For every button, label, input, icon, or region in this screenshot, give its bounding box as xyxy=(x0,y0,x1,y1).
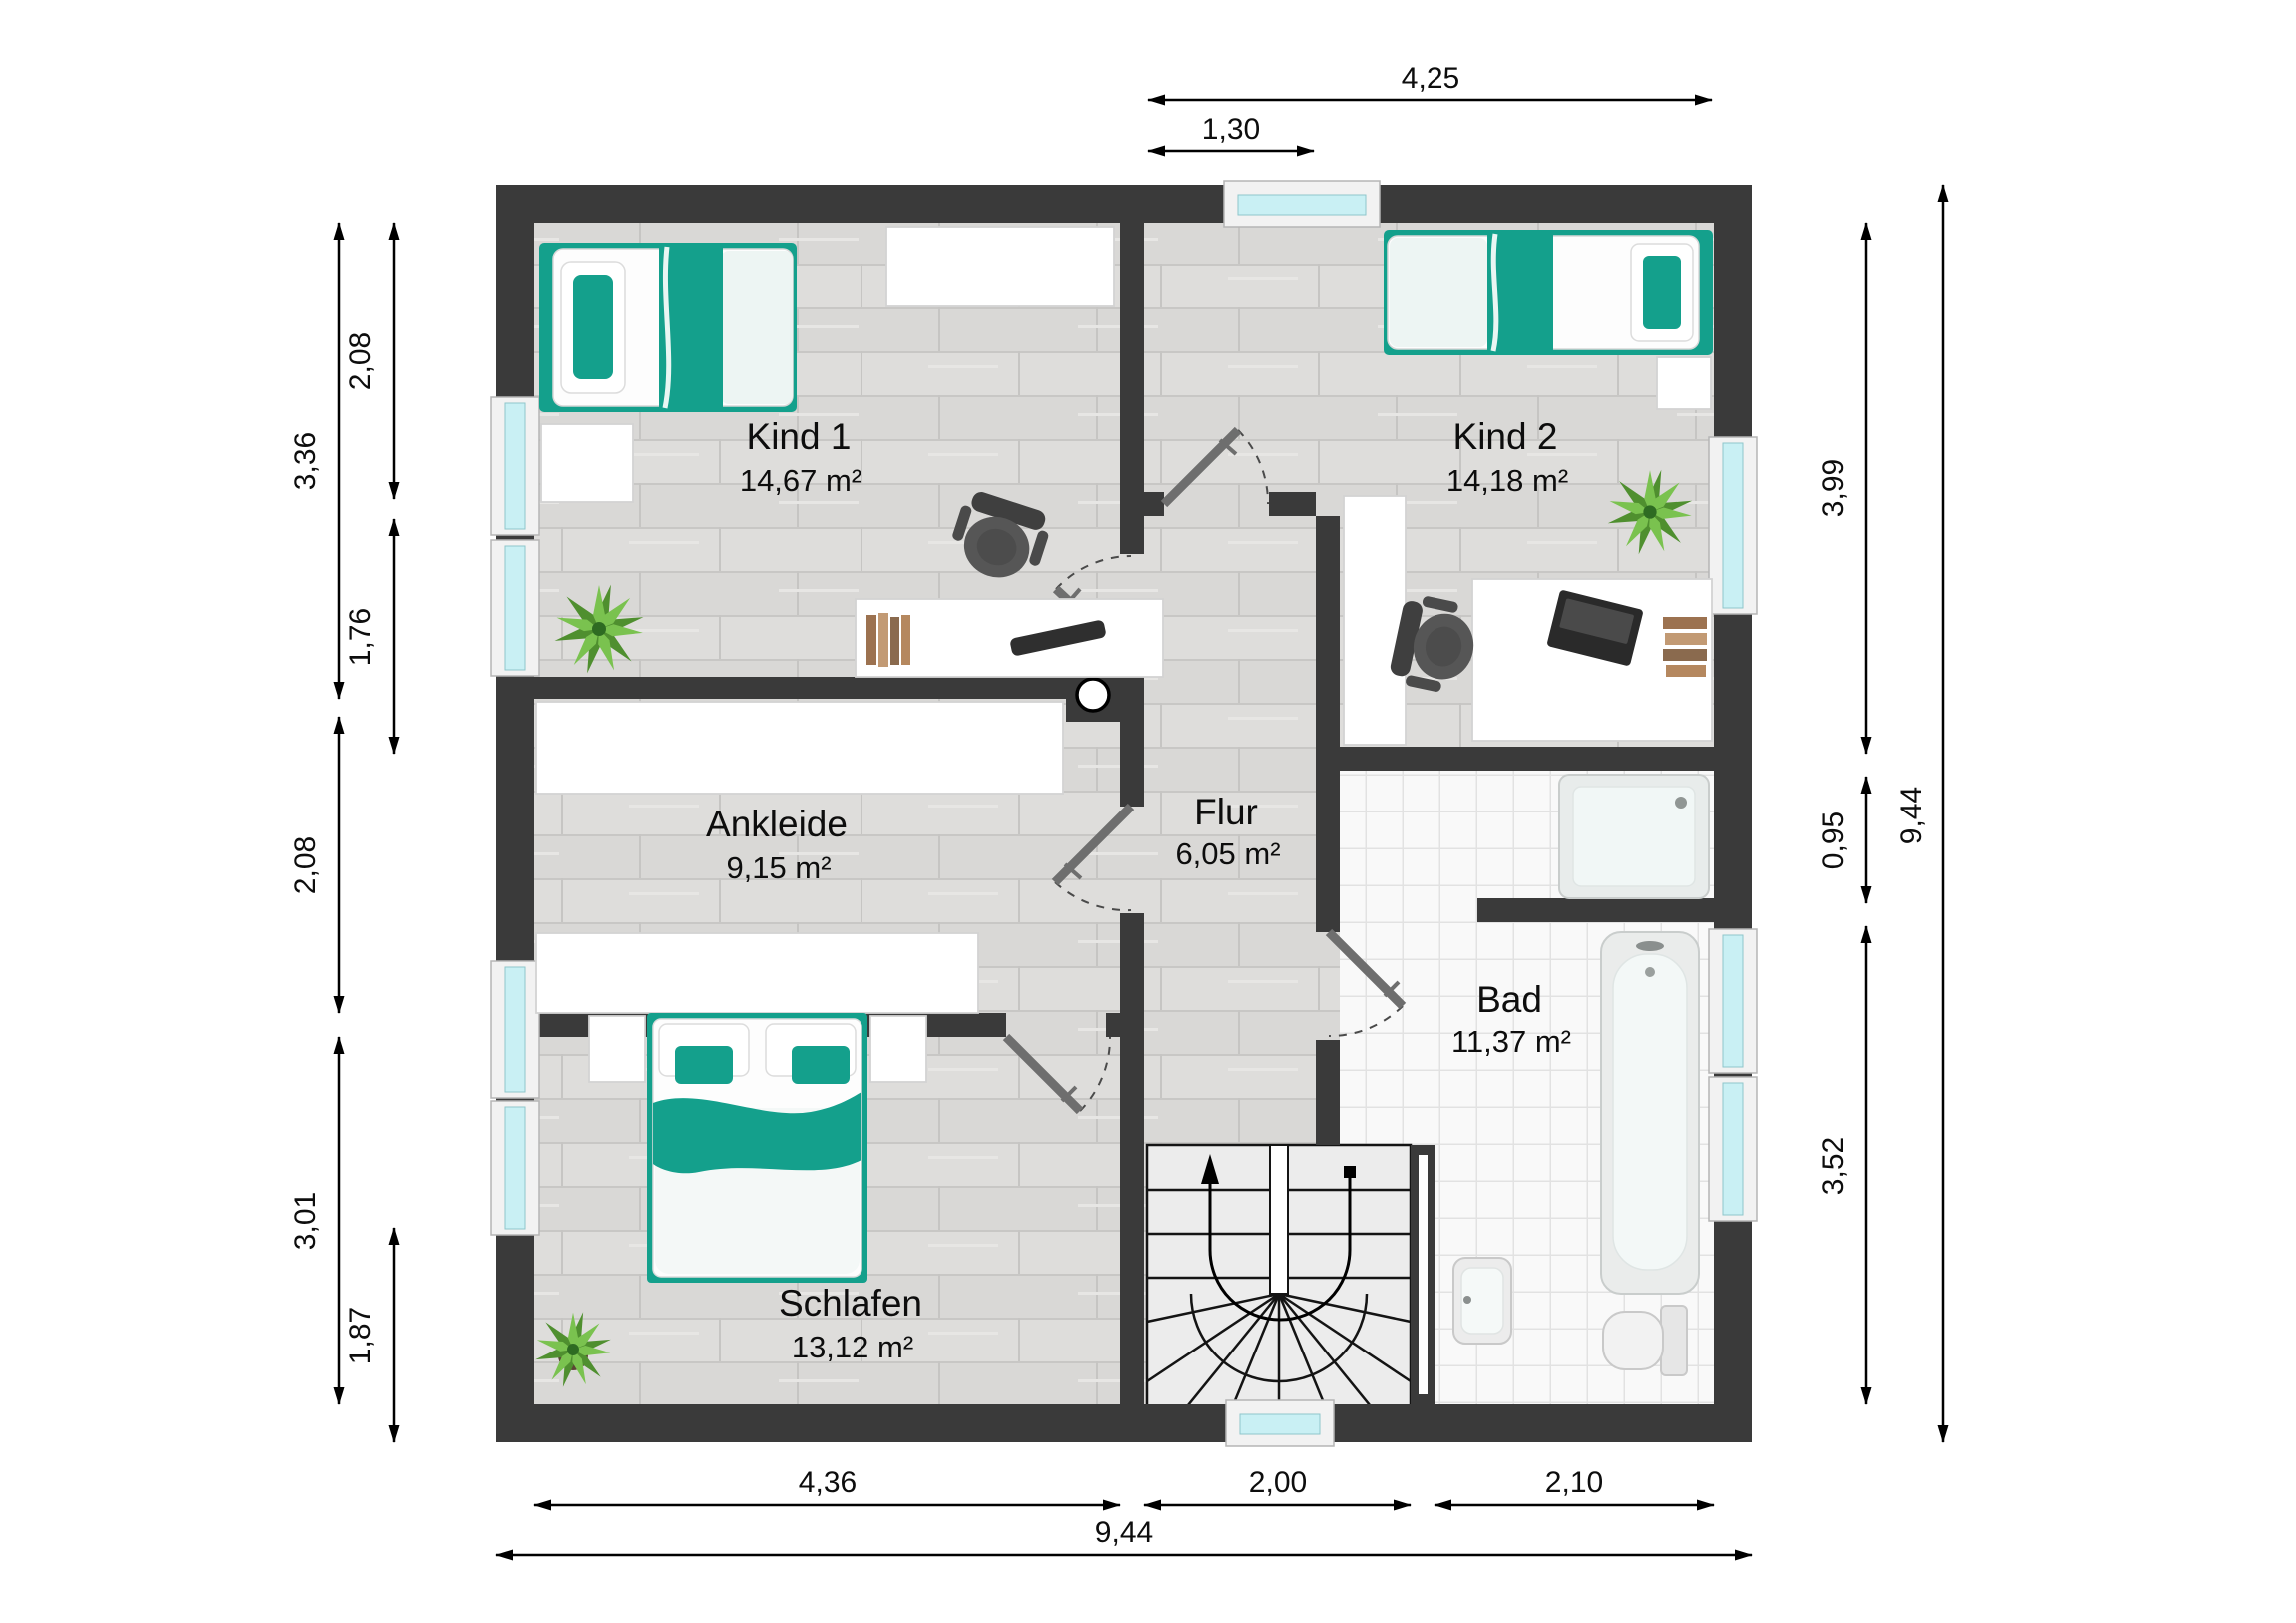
nightstand-kind2 xyxy=(1657,357,1711,409)
wall-kind1-flur-mid xyxy=(1120,656,1144,807)
room-area-schlafen: 13,12 m² xyxy=(792,1330,913,1364)
wardrobe-ankleide-bottom xyxy=(536,933,978,1013)
dim-right-total: 9,44 xyxy=(1895,787,1928,844)
room-label-schlafen: Schlafen xyxy=(779,1283,922,1324)
room-area-kind2: 14,18 m² xyxy=(1446,463,1568,498)
wall-shower-nook xyxy=(1477,898,1714,922)
room-label-flur: Flur xyxy=(1194,792,1258,832)
dim-right-kind2: 3,99 xyxy=(1817,459,1850,517)
room-area-kind1: 14,67 m² xyxy=(740,463,861,498)
dim-left-schlafen: 3,01 xyxy=(289,1192,322,1250)
room-area-flur: 6,05 m² xyxy=(1175,836,1280,871)
wall-kind2-door-right xyxy=(1269,492,1316,516)
nightstand-schlafen-right xyxy=(870,1016,926,1082)
wall-flur-bad-lower xyxy=(1316,1040,1340,1145)
dim-bottom-total: 9,44 xyxy=(1095,1516,1153,1549)
window-icon-schlafen-left-upper xyxy=(491,961,539,1098)
dim-left-inner-mid: 1,76 xyxy=(344,608,377,666)
room-label-ankleide: Ankleide xyxy=(706,804,848,844)
wall-stairs-bad-face xyxy=(1419,1155,1428,1394)
wall-kind2-bad xyxy=(1316,747,1714,771)
dim-left-inner-low: 1,87 xyxy=(344,1307,377,1364)
toilet-icon xyxy=(1603,1306,1687,1375)
wall-schlafen-flur xyxy=(1120,913,1144,1404)
washbasin-icon xyxy=(1453,1258,1511,1344)
wardrobe-kind2 xyxy=(1344,496,1406,745)
bathtub-icon xyxy=(1601,932,1699,1294)
nightstand-kind1 xyxy=(541,424,633,502)
wall-ankleide-schlafen-right xyxy=(1106,1013,1120,1037)
shower-icon xyxy=(1559,775,1709,898)
wall-outer-bottom xyxy=(496,1404,1752,1442)
dim-left-ankleide: 2,08 xyxy=(289,836,322,894)
room-label-bad: Bad xyxy=(1476,979,1542,1020)
wall-kind1-flur-upper xyxy=(1120,223,1144,554)
dim-right-shower-nook: 0,95 xyxy=(1817,811,1850,869)
dim-left-kind1: 3,36 xyxy=(289,432,322,490)
wall-outer-right xyxy=(1714,185,1752,1442)
dim-top-window: 1,30 xyxy=(1202,113,1260,146)
window-icon-bad-right-lower xyxy=(1709,1077,1757,1221)
wall-outer-top xyxy=(496,185,1752,223)
window-icon-schlafen-left-lower xyxy=(491,1101,539,1235)
floor-plan-drawing: Kind 1 14,67 m² Kind 2 14,18 m² Ankleide… xyxy=(0,0,2296,1623)
dim-left-inner-windows: 2,08 xyxy=(344,332,377,390)
room-area-ankleide: 9,15 m² xyxy=(726,850,831,885)
dresser-kind1 xyxy=(886,227,1114,306)
window-icon-kind2-right xyxy=(1709,437,1757,614)
single-bed-icon-kind1 xyxy=(539,243,797,412)
dim-bottom-bad: 2,10 xyxy=(1545,1466,1603,1499)
window-icon-kind1-left-upper xyxy=(491,397,539,535)
nightstand-schlafen-left xyxy=(589,1016,645,1082)
wall-kind1-ankleide xyxy=(534,677,1066,699)
books-icon-kind1 xyxy=(866,613,910,667)
single-bed-icon-kind2 xyxy=(1384,230,1713,355)
wardrobe-ankleide-top xyxy=(536,702,1063,794)
room-label-kind1: Kind 1 xyxy=(747,416,852,457)
dim-top-overall: 4,25 xyxy=(1402,62,1459,95)
wall-kind2-door-stub xyxy=(1144,492,1164,516)
stairs-icon xyxy=(1147,1145,1411,1432)
double-bed-icon-schlafen xyxy=(647,1013,867,1283)
wall-flur-kind2-bad xyxy=(1316,516,1340,932)
dim-bottom-stairs: 2,00 xyxy=(1249,1466,1307,1499)
window-icon-stairs-bottom xyxy=(1226,1400,1334,1446)
window-icon-top xyxy=(1224,181,1380,227)
dim-right-bad: 3,52 xyxy=(1817,1137,1850,1195)
room-label-kind2: Kind 2 xyxy=(1453,416,1558,457)
room-area-bad: 11,37 m² xyxy=(1451,1024,1571,1059)
dim-bottom-schlafen: 4,36 xyxy=(799,1466,857,1499)
wall-outer-left xyxy=(496,185,534,1442)
floor-plan-canvas: Kind 1 14,67 m² Kind 2 14,18 m² Ankleide… xyxy=(0,0,2296,1623)
window-icon-kind1-left-lower xyxy=(491,540,539,676)
window-icon-bad-right-upper xyxy=(1709,929,1757,1073)
